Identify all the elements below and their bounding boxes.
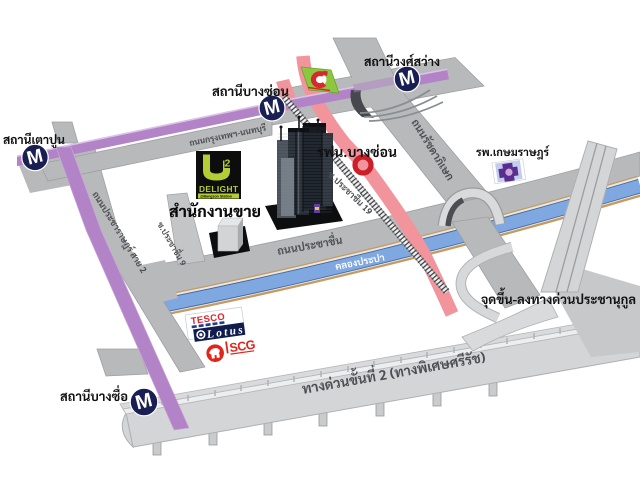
svg-text:DELIGHT: DELIGHT (199, 184, 239, 194)
svg-text:2: 2 (225, 158, 231, 170)
svg-text:@Bangson Station: @Bangson Station (200, 195, 232, 199)
